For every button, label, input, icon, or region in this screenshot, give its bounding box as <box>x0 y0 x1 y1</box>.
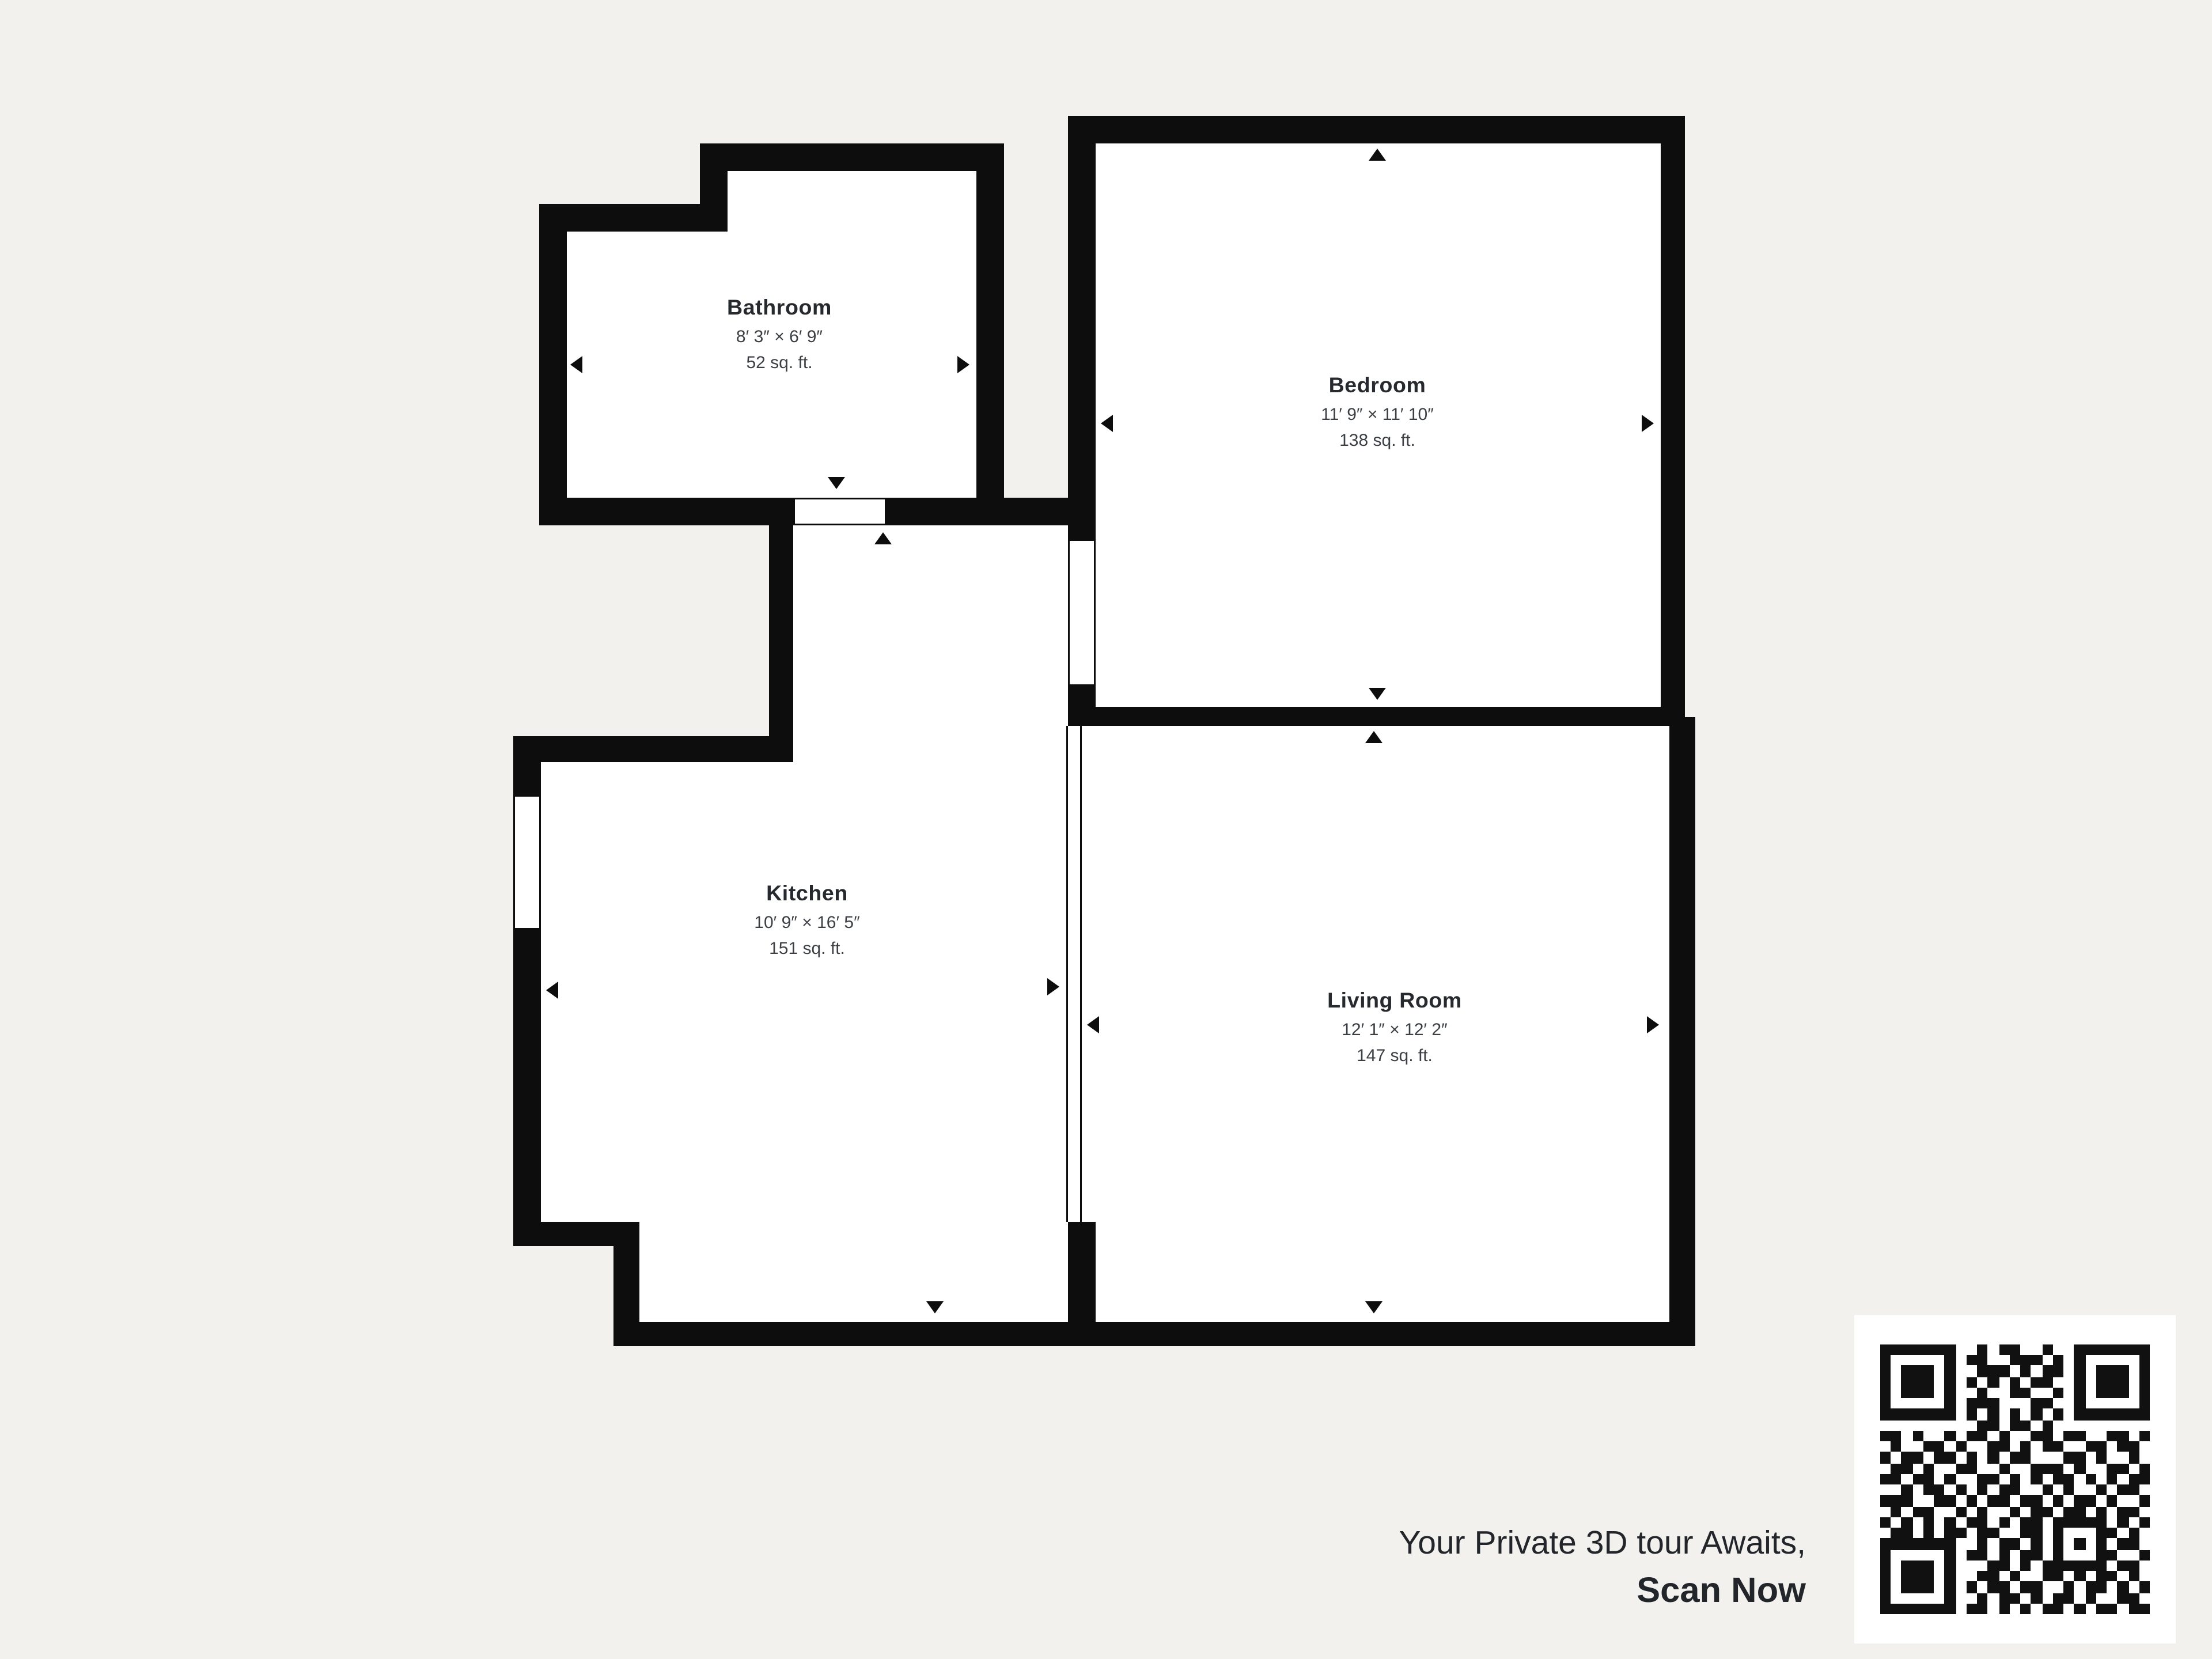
bottom-exterior-wall <box>613 1322 1695 1346</box>
bathroom-arrow-down-icon <box>828 477 845 489</box>
bathroom-area: 52 sq. ft. <box>727 354 832 373</box>
kitchen-living-passage-opening <box>1066 726 1082 1222</box>
hallway-left-wall <box>769 525 793 762</box>
bathroom-name: Bathroom <box>727 296 832 320</box>
kitchen-dimensions: 10′ 9″ × 16′ 5″ <box>754 914 859 933</box>
scan-cta: Your Private 3D tour Awaits, Scan Now <box>1399 1526 1806 1612</box>
kitchen-window <box>513 795 541 930</box>
living-room-arrow-up-icon <box>1365 731 1382 743</box>
living-room-arrow-left-icon <box>1087 1016 1099 1033</box>
floor-plan-canvas: Bathroom 8′ 3″ × 6′ 9″ 52 sq. ft. Bedroo… <box>0 0 2212 1659</box>
kitchen-label: Kitchen 10′ 9″ × 16′ 5″ 151 sq. ft. <box>754 881 859 959</box>
kitchen-floor-notch <box>639 1222 1082 1322</box>
kitchen-arrow-left-icon <box>546 982 558 999</box>
living-room-arrow-down-icon <box>1365 1301 1382 1313</box>
qr-code-card <box>1854 1315 2176 1643</box>
bathroom-label: Bathroom 8′ 3″ × 6′ 9″ 52 sq. ft. <box>727 296 832 373</box>
living-room-name: Living Room <box>1327 988 1462 1013</box>
bedroom-arrow-right-icon <box>1642 415 1654 432</box>
bedroom-name: Bedroom <box>1321 373 1434 397</box>
living-room-area: 147 sq. ft. <box>1327 1047 1462 1066</box>
bathroom-top-wall <box>700 143 1004 171</box>
bedroom-label: Bedroom 11′ 9″ × 11′ 10″ 138 sq. ft. <box>1321 373 1434 451</box>
living-room-arrow-right-icon <box>1647 1016 1659 1033</box>
bedroom-top-wall <box>1068 116 1685 143</box>
kitchen-arrow-up-icon <box>874 532 892 544</box>
qr-code <box>1880 1344 2150 1614</box>
bathroom-arrow-right-icon <box>957 356 969 373</box>
kitchen-name: Kitchen <box>754 881 859 906</box>
bathroom-bottom-wall-right <box>887 498 1070 525</box>
bedroom-arrow-down-icon <box>1369 688 1386 700</box>
kitchen-living-divider-stub <box>1068 1222 1096 1322</box>
bedroom-dimensions: 11′ 9″ × 11′ 10″ <box>1321 406 1434 425</box>
bathroom-top-left-wall <box>539 204 728 232</box>
bathroom-dimensions: 8′ 3″ × 6′ 9″ <box>727 328 832 347</box>
bathroom-bottom-wall-left <box>539 498 793 525</box>
bathroom-right-wall <box>976 143 1004 525</box>
kitchen-top-wall <box>513 736 793 762</box>
cta-scan-now-text: Scan Now <box>1399 1571 1806 1612</box>
kitchen-left-wall-lower <box>513 930 541 1246</box>
bathroom-door-opening <box>793 498 887 525</box>
bathroom-left-wall <box>539 204 567 525</box>
kitchen-floor <box>541 762 1082 1222</box>
living-room-right-wall <box>1669 717 1695 1346</box>
kitchen-arrow-down-icon <box>926 1301 944 1313</box>
bedroom-door-opening <box>1068 539 1096 686</box>
kitchen-left-wall-upper <box>513 736 541 795</box>
bedroom-right-wall <box>1661 116 1685 726</box>
hallway-floor <box>793 525 1082 762</box>
kitchen-arrow-right-icon <box>1047 978 1059 995</box>
kitchen-area: 151 sq. ft. <box>754 940 859 959</box>
cta-text: Your Private 3D tour Awaits, <box>1399 1526 1806 1564</box>
bedroom-arrow-left-icon <box>1101 415 1113 432</box>
bedroom-bottom-wall <box>1068 707 1685 726</box>
bathroom-arrow-up-icon <box>828 156 845 168</box>
living-room-dimensions: 12′ 1″ × 12′ 2″ <box>1327 1021 1462 1040</box>
bedroom-area: 138 sq. ft. <box>1321 432 1434 451</box>
living-room-label: Living Room 12′ 1″ × 12′ 2″ 147 sq. ft. <box>1327 988 1462 1066</box>
bedroom-left-wall-upper <box>1068 116 1096 539</box>
bathroom-arrow-left-icon <box>570 356 582 373</box>
bedroom-arrow-up-icon <box>1369 149 1386 161</box>
